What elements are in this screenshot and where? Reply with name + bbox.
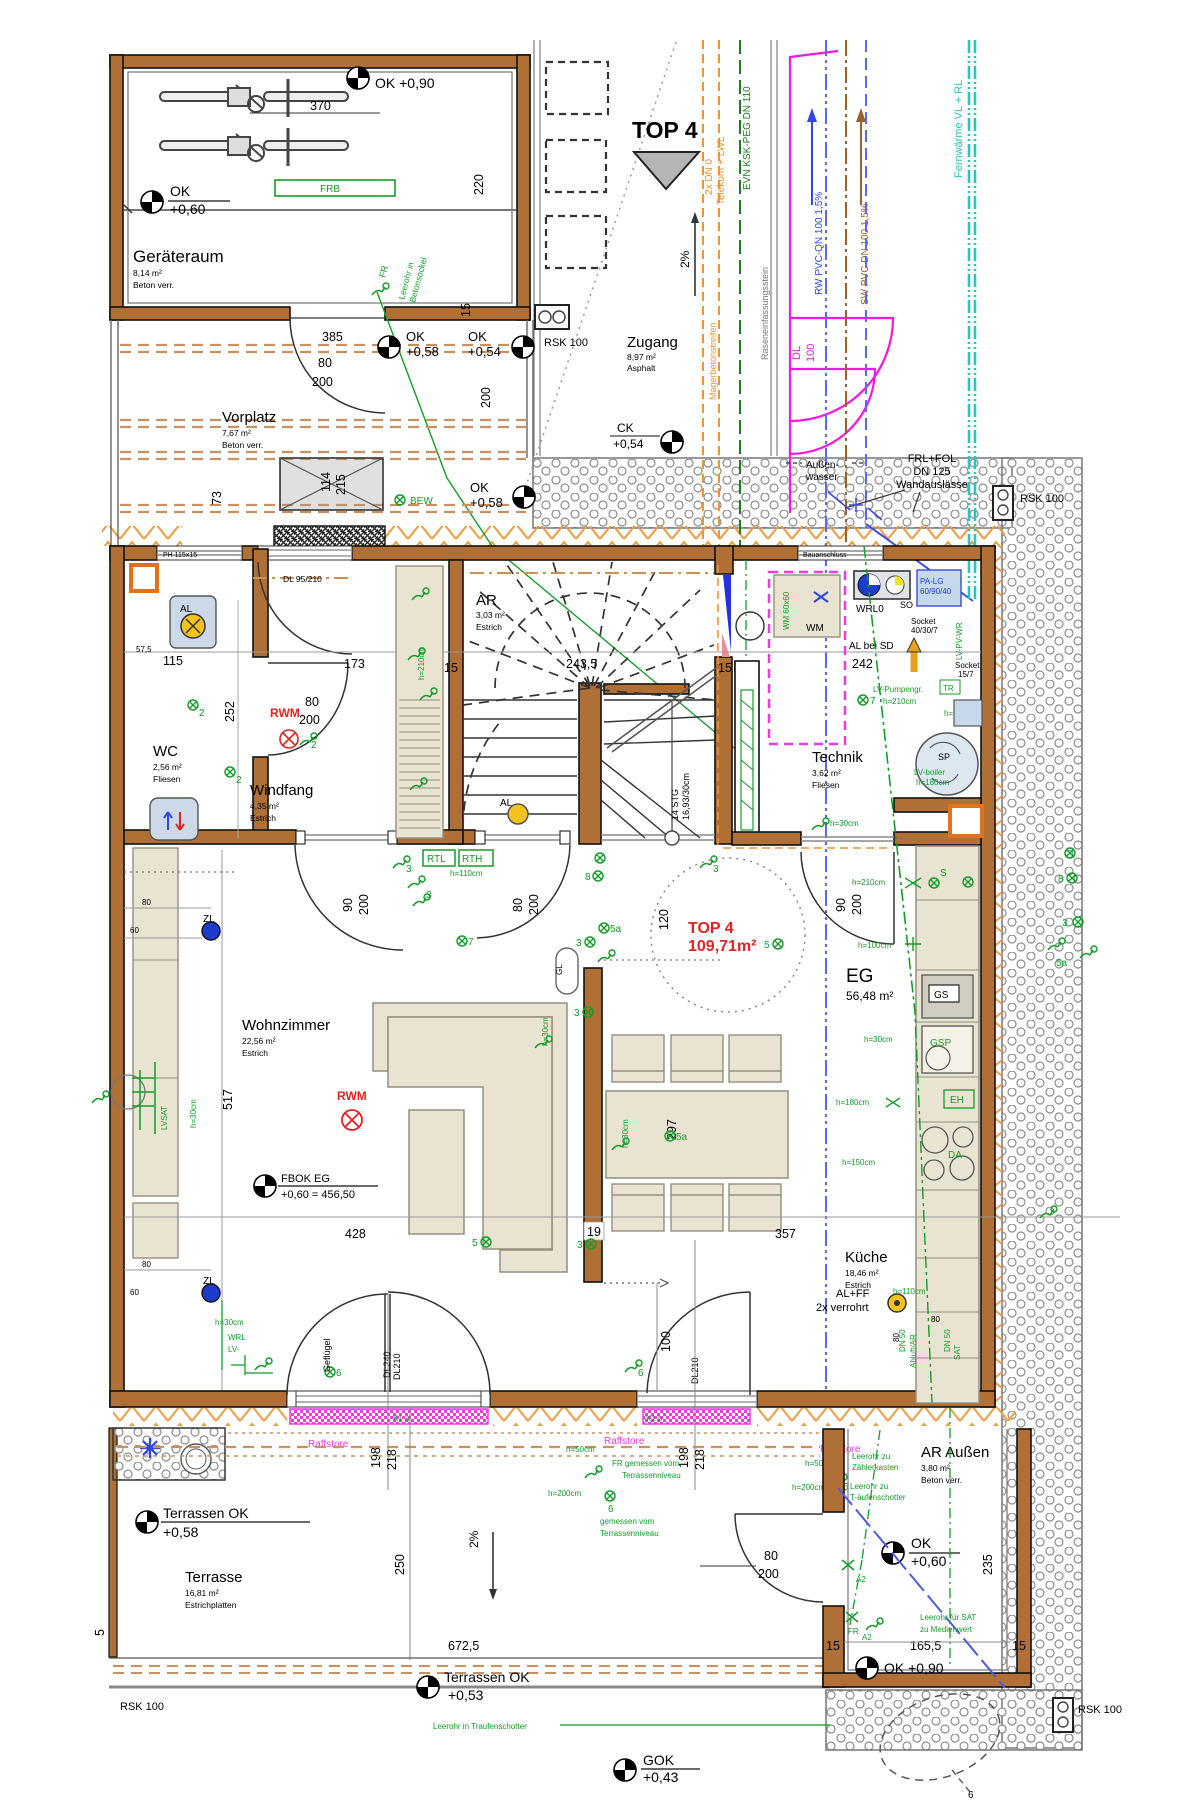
svg-text:Wandauslässe: Wandauslässe (896, 479, 968, 491)
svg-text:200: 200 (299, 713, 320, 727)
svg-text:Socket: Socket (955, 661, 980, 670)
svg-text:RWM: RWM (270, 706, 300, 720)
svg-text:LV-PV-WR: LV-PV-WR (955, 622, 964, 660)
svg-text:15: 15 (444, 661, 458, 675)
svg-text:Raffstore: Raffstore (308, 1439, 349, 1450)
svg-text:h=180cm: h=180cm (836, 1098, 869, 1107)
svg-text:Vorplatz: Vorplatz (222, 409, 276, 426)
svg-text:Geflügel: Geflügel (322, 1338, 332, 1372)
svg-text:60: 60 (130, 926, 139, 935)
svg-text:OK +0,90: OK +0,90 (884, 1660, 944, 1676)
svg-text:OK: OK (468, 329, 487, 344)
svg-text:73: 73 (210, 491, 224, 505)
svg-text:80: 80 (511, 898, 525, 912)
svg-text:5: 5 (764, 940, 770, 951)
svg-text:16,93/30cm: 16,93/30cm (681, 773, 691, 820)
svg-text:2x verrohrt: 2x verrohrt (816, 1302, 869, 1314)
svg-text:Technik: Technik (812, 749, 863, 766)
svg-text:K1 a: K1 a (393, 1414, 410, 1423)
svg-text:+0,54: +0,54 (468, 344, 501, 359)
svg-text:OK: OK (470, 480, 489, 495)
svg-text:80: 80 (142, 1260, 151, 1269)
svg-text:WC: WC (153, 743, 178, 760)
svg-text:2%: 2% (467, 1530, 481, 1548)
svg-text:5a: 5a (1056, 958, 1068, 969)
svg-text:T-äufenschotter: T-äufenschotter (850, 1493, 906, 1502)
svg-text:Geräteraum: Geräteraum (133, 247, 224, 266)
svg-text:Estrich: Estrich (845, 1280, 871, 1290)
svg-text:Telekom + LWL: Telekom + LWL (716, 136, 727, 205)
svg-text:h=210cm: h=210cm (852, 878, 885, 887)
svg-text:h=100cm: h=100cm (858, 941, 891, 950)
svg-text:DL240: DL240 (382, 1351, 392, 1378)
svg-text:Zählerkasten: Zählerkasten (852, 1463, 898, 1472)
svg-text:+0,54: +0,54 (613, 437, 644, 451)
svg-text:Leerohr zu: Leerohr zu (852, 1452, 890, 1461)
svg-text:TOP 4: TOP 4 (632, 117, 698, 143)
svg-text:8,97 m²: 8,97 m² (627, 352, 656, 362)
svg-text:GOK: GOK (643, 1752, 675, 1768)
svg-text:PA-LG: PA-LG (920, 577, 943, 586)
svg-text:672,5: 672,5 (448, 1639, 479, 1653)
svg-text:198: 198 (369, 1447, 383, 1468)
svg-text:200: 200 (527, 894, 541, 915)
svg-text:3: 3 (1062, 918, 1068, 929)
svg-text:Beton verr.: Beton verr. (222, 440, 263, 450)
svg-text:3,62 m²: 3,62 m² (812, 768, 841, 778)
svg-text:h=200cm: h=200cm (548, 1489, 581, 1498)
svg-text:h=30cm: h=30cm (541, 1017, 550, 1046)
svg-text:6: 6 (638, 1368, 644, 1379)
svg-text:Außen-: Außen- (806, 460, 839, 471)
svg-text:A2: A2 (856, 1575, 866, 1584)
svg-text:DL210: DL210 (392, 1353, 402, 1380)
svg-text:14 STG: 14 STG (670, 789, 680, 820)
svg-text:Beton verr.: Beton verr. (921, 1475, 962, 1485)
svg-text:Leerohr für SAT: Leerohr für SAT (920, 1613, 976, 1622)
svg-text:WM 60x60: WM 60x60 (782, 591, 791, 630)
svg-text:243,5: 243,5 (566, 657, 597, 671)
svg-text:80: 80 (931, 1315, 940, 1324)
svg-text:h=30cm: h=30cm (215, 1318, 244, 1327)
svg-text:h=110cm: h=110cm (450, 869, 483, 878)
svg-text:+0,58: +0,58 (163, 1524, 199, 1540)
svg-text:200: 200 (850, 894, 864, 915)
svg-text:90: 90 (834, 898, 848, 912)
svg-text:80: 80 (892, 1333, 901, 1342)
svg-text:7: 7 (870, 696, 876, 707)
svg-text:517: 517 (221, 1089, 235, 1110)
svg-text:AR: AR (476, 592, 497, 609)
svg-text:115: 115 (163, 654, 183, 668)
svg-text:56,48 m²: 56,48 m² (846, 989, 893, 1003)
svg-text:252: 252 (223, 701, 237, 722)
svg-text:80: 80 (764, 1549, 778, 1563)
svg-text:2,56 m²: 2,56 m² (153, 762, 182, 772)
svg-text:+0,43: +0,43 (643, 1769, 679, 1785)
svg-text:S: S (940, 868, 947, 879)
svg-text:OK: OK (406, 329, 425, 344)
svg-text:+0,58: +0,58 (470, 495, 503, 510)
svg-text:EVN KSK-PEG DN 110: EVN KSK-PEG DN 110 (742, 86, 753, 190)
svg-text:GL: GL (555, 964, 564, 975)
svg-text:Küche: Küche (845, 1249, 888, 1266)
svg-text:385: 385 (322, 330, 343, 344)
svg-text:2: 2 (236, 775, 242, 786)
svg-text:Abluft/AR: Abluft/AR (909, 1334, 918, 1368)
svg-text:100: 100 (805, 344, 817, 362)
svg-text:220: 220 (472, 174, 486, 195)
svg-text:A2: A2 (862, 1633, 872, 1642)
svg-text:Leerohr in Traufenschotter: Leerohr in Traufenschotter (433, 1722, 527, 1731)
svg-text:15: 15 (718, 661, 732, 675)
svg-text:RW PVC-QN 100 1,5%: RW PVC-QN 100 1,5% (814, 192, 825, 295)
svg-text:EG: EG (846, 966, 873, 987)
svg-text:6: 6 (608, 1504, 614, 1515)
svg-text:Windfang: Windfang (250, 782, 313, 799)
svg-text:6: 6 (968, 1790, 974, 1801)
svg-text:RSK 100: RSK 100 (1078, 1704, 1122, 1716)
svg-text:80: 80 (142, 898, 151, 907)
svg-text:RSK 100: RSK 100 (544, 337, 588, 349)
svg-text:Magerbetonstreifen: Magerbetonstreifen (708, 322, 718, 400)
svg-text:8: 8 (585, 872, 591, 883)
svg-text:114: 114 (319, 472, 333, 492)
svg-text:242: 242 (852, 657, 873, 671)
svg-text:200: 200 (758, 1567, 779, 1581)
svg-text:15: 15 (459, 303, 473, 317)
svg-text:109,71m²: 109,71m² (688, 938, 757, 955)
svg-text:EH: EH (950, 1095, 964, 1106)
svg-text:+0,60: +0,60 (911, 1553, 947, 1569)
svg-text:80: 80 (305, 695, 319, 709)
svg-text:60: 60 (130, 1288, 139, 1297)
svg-text:Beton verr.: Beton verr. (133, 280, 174, 290)
svg-text:AR Außen: AR Außen (921, 1444, 989, 1461)
svg-text:19: 19 (587, 1225, 601, 1239)
svg-text:BEW: BEW (410, 496, 433, 507)
svg-text:WRL0: WRL0 (856, 604, 884, 615)
svg-text:60/90/40: 60/90/40 (920, 587, 952, 596)
svg-text:200: 200 (479, 387, 493, 408)
svg-text:WRL: WRL (228, 1333, 246, 1342)
svg-text:h=30cm: h=30cm (189, 1099, 198, 1128)
svg-text:AL: AL (180, 604, 193, 615)
svg-text:15: 15 (1012, 1639, 1026, 1653)
svg-text:357: 357 (775, 1227, 796, 1241)
svg-text:15/7: 15/7 (958, 670, 974, 679)
svg-text:h=200cm: h=200cm (792, 1483, 825, 1492)
svg-text:Socket: Socket (911, 617, 936, 626)
svg-text:+0,53: +0,53 (448, 1687, 484, 1703)
svg-text:CK: CK (617, 421, 634, 435)
svg-text:SW PVC DN 100 1,5%: SW PVC DN 100 1,5% (860, 203, 871, 305)
svg-text:Terrassen OK: Terrassen OK (444, 1669, 530, 1685)
svg-text:h=180cm: h=180cm (916, 778, 949, 787)
svg-text:3: 3 (576, 938, 582, 949)
svg-text:3,80 m²: 3,80 m² (921, 1463, 950, 1473)
svg-text:TR: TR (943, 684, 954, 693)
svg-text:Estrichplatten: Estrichplatten (185, 1600, 237, 1610)
svg-text:165,5: 165,5 (910, 1639, 941, 1653)
svg-text:FRL+FOL: FRL+FOL (908, 453, 957, 465)
svg-text:PH 115x15: PH 115x15 (163, 552, 197, 559)
svg-text:2: 2 (311, 740, 317, 751)
svg-text:h=30cm: h=30cm (830, 819, 859, 828)
svg-text:Zugang: Zugang (627, 334, 678, 351)
svg-text:Terrassen OK: Terrassen OK (163, 1505, 249, 1521)
svg-text:RSK 100: RSK 100 (120, 1701, 164, 1713)
svg-text:RSK 100: RSK 100 (1020, 493, 1064, 505)
svg-text:zu Medienwert: zu Medienwert (920, 1625, 973, 1634)
svg-text:218: 218 (385, 1449, 399, 1470)
svg-text:TOP 4: TOP 4 (688, 920, 734, 937)
svg-text:100: 100 (659, 1331, 673, 1352)
svg-text:GS: GS (934, 990, 949, 1001)
svg-text:6: 6 (336, 1368, 342, 1379)
svg-text:+0,60 = 456,50: +0,60 = 456,50 (281, 1189, 355, 1201)
svg-text:7,67 m²: 7,67 m² (222, 428, 251, 438)
svg-text:OK: OK (170, 183, 191, 199)
svg-text:235: 235 (981, 1554, 995, 1575)
svg-text:200: 200 (357, 894, 371, 915)
svg-text:LVSAT: LVSAT (160, 1106, 169, 1130)
svg-text:40/30/7: 40/30/7 (911, 626, 938, 635)
svg-text:173: 173 (344, 657, 365, 671)
svg-text:5a: 5a (610, 924, 622, 935)
svg-text:GSP: GSP (930, 1038, 951, 1049)
svg-text:+0,58: +0,58 (406, 344, 439, 359)
svg-text:370: 370 (310, 99, 331, 113)
svg-text:3: 3 (713, 864, 719, 875)
svg-text:FR: FR (848, 1627, 859, 1636)
svg-text:57,5: 57,5 (136, 645, 152, 654)
svg-text:h=30cm: h=30cm (864, 1035, 893, 1044)
svg-text:120: 120 (657, 909, 671, 930)
svg-text:80: 80 (318, 356, 332, 370)
svg-text:5a: 5a (676, 1132, 688, 1143)
svg-text:218: 218 (693, 1449, 707, 1470)
svg-text:h=30cm: h=30cm (621, 1119, 630, 1148)
svg-text:Wohnzimmer: Wohnzimmer (242, 1017, 330, 1034)
svg-text:3: 3 (577, 1240, 583, 1251)
svg-text:LV-: LV- (228, 1345, 240, 1354)
svg-text:Leerohr zu: Leerohr zu (850, 1482, 888, 1491)
svg-text:200: 200 (312, 375, 333, 389)
svg-text:gemessen vom: gemessen vom (600, 1517, 655, 1526)
svg-text:8,14 m²: 8,14 m² (133, 268, 162, 278)
svg-text:7: 7 (468, 937, 474, 948)
svg-text:3,03 m²: 3,03 m² (476, 610, 505, 620)
svg-text:DL: DL (791, 346, 803, 360)
svg-text:2x DN 0: 2x DN 0 (704, 158, 715, 195)
svg-text:OK +0,90: OK +0,90 (375, 75, 435, 91)
svg-text:428: 428 (345, 1227, 366, 1241)
svg-text:AL bei SD: AL bei SD (849, 641, 894, 652)
svg-text:wasser: wasser (805, 472, 838, 483)
svg-text:DL 95/210: DL 95/210 (283, 574, 322, 584)
svg-text:215: 215 (334, 474, 348, 495)
svg-text:250: 250 (393, 1554, 407, 1575)
svg-text:h=50cm: h=50cm (566, 1445, 595, 1454)
svg-text:15: 15 (826, 1639, 840, 1653)
svg-text:DA: DA (948, 1150, 962, 1161)
svg-text:2: 2 (199, 708, 205, 719)
svg-text:+0,60: +0,60 (170, 201, 206, 217)
svg-text:RTL: RTL (427, 854, 446, 865)
svg-text:3: 3 (574, 1008, 580, 1019)
svg-text:Terrassenniveau: Terrassenniveau (600, 1529, 659, 1538)
svg-text:Asphalt: Asphalt (627, 363, 656, 373)
svg-text:8: 8 (1058, 874, 1064, 885)
svg-text:Terrasse: Terrasse (185, 1569, 243, 1586)
svg-text:16,81 m²: 16,81 m² (185, 1588, 219, 1598)
svg-text:Raffstore: Raffstore (604, 1436, 645, 1447)
svg-text:Terrassenniveau: Terrassenniveau (622, 1471, 681, 1480)
svg-text:SP: SP (938, 752, 950, 762)
svg-text:RTH: RTH (462, 854, 482, 865)
svg-text:3: 3 (426, 890, 432, 901)
svg-text:Estrich: Estrich (242, 1048, 268, 1058)
svg-text:DN 50: DN 50 (943, 1329, 952, 1352)
svg-text:SAT: SAT (953, 1345, 962, 1360)
svg-text:K1 b: K1 b (646, 1414, 663, 1423)
svg-text:h=150cm: h=150cm (842, 1158, 875, 1167)
svg-text:OK: OK (911, 1535, 932, 1551)
svg-text:h=210cm: h=210cm (883, 697, 916, 706)
svg-text:FRB: FRB (320, 184, 340, 195)
svg-text:Fliesen: Fliesen (812, 780, 840, 790)
svg-text:5: 5 (472, 1238, 478, 1249)
svg-text:5: 5 (93, 1629, 107, 1636)
svg-text:Estrich: Estrich (250, 813, 276, 823)
svg-text:22,56 m²: 22,56 m² (242, 1036, 276, 1046)
svg-text:Estrich: Estrich (476, 622, 502, 632)
svg-text:Fliesen: Fliesen (153, 774, 181, 784)
svg-text:Fernwärme VL + RL: Fernwärme VL + RL (953, 80, 965, 178)
svg-text:FBOK EG: FBOK EG (281, 1173, 330, 1185)
svg-text:3: 3 (406, 864, 412, 875)
svg-text:h=210cm: h=210cm (417, 647, 426, 680)
svg-text:DN 125: DN 125 (913, 466, 950, 478)
svg-text:LV-boiler: LV-boiler (914, 768, 945, 777)
svg-text:Bauanschluss: Bauanschluss (803, 552, 847, 559)
svg-text:SO: SO (900, 600, 913, 610)
svg-text:4,35 m²: 4,35 m² (250, 801, 279, 811)
svg-text:RWM: RWM (337, 1089, 367, 1103)
svg-text:WM: WM (806, 623, 824, 634)
svg-text:90: 90 (341, 898, 355, 912)
svg-text:FR gemessen vom: FR gemessen vom (612, 1459, 679, 1468)
svg-text:2%: 2% (678, 250, 692, 268)
svg-text:18,46 m²: 18,46 m² (845, 1268, 879, 1278)
svg-text:Raseneinfassungsstein: Raseneinfassungsstein (760, 267, 770, 360)
